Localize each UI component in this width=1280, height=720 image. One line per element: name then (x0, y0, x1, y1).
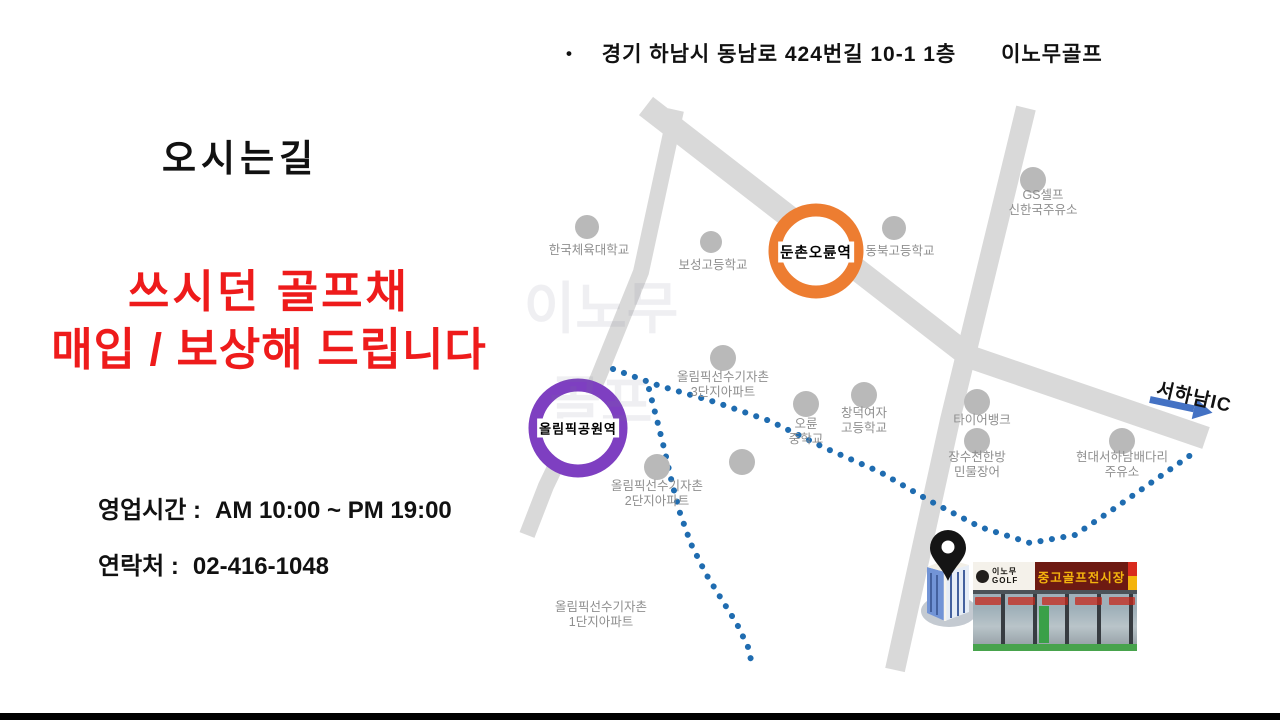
place-label: 동북고등학교 (865, 244, 934, 259)
dot-boseong-hs (700, 231, 722, 253)
place-label: GS셀프 신한국주유소 (1008, 188, 1077, 218)
directions-poster: • 경기 하남시 동남로 424번길 10-1 1층 이노무골프 오시는길 쓰시… (0, 0, 1280, 720)
storefront-windows (973, 590, 1137, 651)
window-red-banners (975, 597, 1135, 605)
dot-oryun-ms (793, 391, 819, 417)
place-label: 보성고등학교 (678, 258, 747, 273)
storefront-sign: 이노무 GOLF 중고골프전시장 (973, 562, 1137, 590)
sign-main-text: 중고골프전시장 (1035, 562, 1128, 590)
dot-tirebank (964, 389, 990, 415)
place-label: 올림픽선수기자촌 3단지아파트 (677, 370, 769, 400)
grass-strip (973, 644, 1137, 651)
green-banner (1039, 606, 1049, 643)
dot-apt2 (644, 454, 670, 480)
place-label: 현대서하남배다리 주유소 (1076, 450, 1168, 480)
dot-apt3 (710, 345, 736, 371)
place-label: 창덕여자 고등학교 (841, 406, 887, 436)
place-label: 타이어뱅크 (953, 413, 1011, 428)
place-label: 올림픽선수기자촌 1단지아파트 (555, 600, 647, 630)
place-label: 장수천한방 민물장어 (948, 450, 1006, 480)
dot-unlabeled (729, 449, 755, 475)
dot-hankuk-univ (575, 215, 599, 239)
place-label: 한국체육대학교 (549, 243, 630, 258)
station-label-olympic-park: 올림픽공원역 (537, 419, 619, 438)
station-label-dunchon-oryun: 둔촌오륜역 (778, 242, 854, 263)
bottom-border-bar (0, 713, 1280, 720)
brand-logo-icon (976, 570, 989, 583)
sign-brand-text: 이노무 GOLF (992, 567, 1018, 585)
place-label: 오륜 중학교 (789, 417, 824, 447)
dot-changdeok-hs (851, 382, 877, 408)
sign-brand-section: 이노무 GOLF (973, 562, 1035, 590)
sign-end-decor (1128, 562, 1137, 590)
place-label: 올림픽선수기자촌 2단지아파트 (611, 479, 703, 509)
storefront-photo: 이노무 GOLF 중고골프전시장 (973, 562, 1137, 651)
dot-dongbuk-hs (882, 216, 906, 240)
